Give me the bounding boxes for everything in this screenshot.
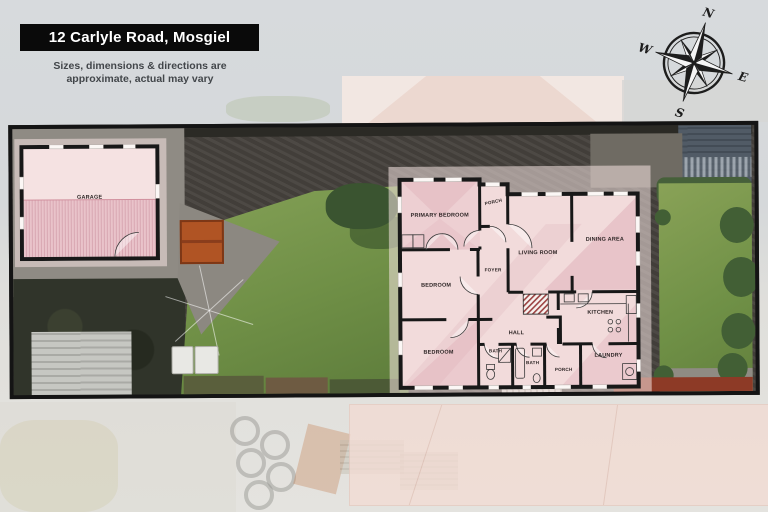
storage-bin xyxy=(194,346,218,374)
property-boundary: GARAGE xyxy=(8,121,760,399)
room-bedroom-middle: BEDROOM xyxy=(421,283,451,289)
room-dining-area: DINING AREA xyxy=(586,237,624,243)
disclaimer: Sizes, dimensions & directions are appro… xyxy=(26,60,254,85)
address-banner: 12 Carlyle Road, Mosgiel xyxy=(20,24,259,51)
house-floorplan: PRIMARY BEDROOM PORCH FOYER LIVING ROOM … xyxy=(395,172,644,397)
neighbor-hedge xyxy=(226,96,330,122)
garden-bed xyxy=(266,377,328,396)
bush xyxy=(720,207,754,243)
bush xyxy=(723,257,759,297)
compass-east-label: E xyxy=(736,69,750,85)
room-bath-main: BATH xyxy=(489,348,503,353)
bush xyxy=(721,313,755,349)
faded-garden-blob xyxy=(0,420,118,512)
listing-image: GARAGE xyxy=(0,0,768,512)
neighbor-roof-bottom xyxy=(349,404,768,506)
room-bath-second: BATH xyxy=(526,360,540,365)
compass-major-points xyxy=(645,12,745,113)
garage-label: GARAGE xyxy=(77,195,103,201)
room-porch-rear: PORCH xyxy=(555,367,573,372)
room-primary-bedroom: PRIMARY BEDROOM xyxy=(411,213,470,219)
room-living-room: LIVING ROOM xyxy=(518,250,557,256)
faded-tire xyxy=(236,448,266,478)
room-foyer: FOYER xyxy=(485,267,502,272)
garage-floorplan: GARAGE xyxy=(19,144,160,261)
faded-tire xyxy=(230,416,260,446)
garden-bed xyxy=(184,376,264,397)
compass-north-label: N xyxy=(700,4,716,21)
bush xyxy=(655,209,671,225)
room-bedroom-rear: BEDROOM xyxy=(423,350,453,356)
storage-bin xyxy=(171,346,193,374)
shed-roof xyxy=(31,331,131,396)
hedge xyxy=(326,183,398,229)
neighbor-roof-top xyxy=(342,76,624,126)
hatched-area xyxy=(523,294,548,314)
room-kitchen: KITCHEN xyxy=(587,310,613,316)
compass-west-label: W xyxy=(637,40,655,58)
room-hall: HALL xyxy=(509,330,525,336)
deck-pattern xyxy=(678,157,751,177)
address-title: 12 Carlyle Road, Mosgiel xyxy=(49,29,231,46)
faded-tire xyxy=(244,480,274,510)
disclaimer-line1: Sizes, dimensions & directions are xyxy=(26,60,254,73)
trailer xyxy=(180,220,224,264)
compass-south-label: S xyxy=(674,105,687,121)
disclaimer-line2: approximate, actual may vary xyxy=(26,73,254,86)
room-laundry: LAUNDRY xyxy=(594,353,622,359)
